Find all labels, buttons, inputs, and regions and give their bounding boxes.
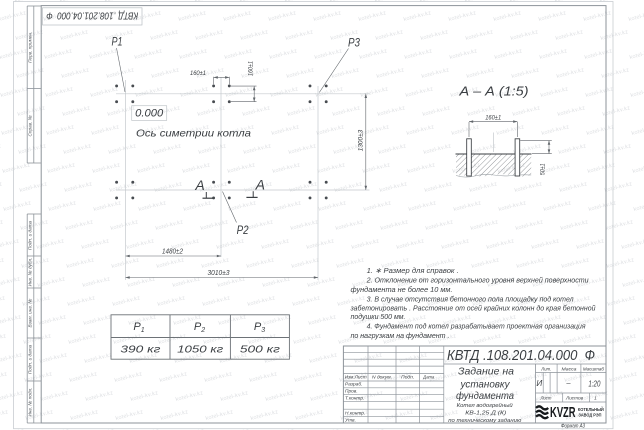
svg-text:Инв. № подл.: Инв. № подл. — [27, 387, 32, 416]
svg-text:Дата: Дата — [422, 374, 434, 380]
svg-text:0.000: 0.000 — [135, 107, 163, 119]
svg-text:Взам. инв. №: Взам. инв. № — [27, 299, 32, 328]
svg-text:А – А (1:5): А – А (1:5) — [458, 83, 528, 98]
svg-text:Перв. примен.: Перв. примен. — [27, 32, 32, 63]
svg-text:Подп. и дата: Подп. и дата — [27, 344, 32, 374]
svg-text:1. ∗ Размер для справок .: 1. ∗ Размер для справок . — [367, 266, 459, 275]
svg-text:1050 кг: 1050 кг — [177, 344, 223, 356]
svg-text:А: А — [194, 177, 204, 193]
svg-text:1300±3: 1300±3 — [357, 130, 364, 152]
svg-text:Инв. № дубл.: Инв. № дубл. — [27, 258, 32, 287]
svg-text:Утв.: Утв. — [345, 417, 356, 423]
svg-text:2. Отклонение от горизонтально: 2. Отклонение от горизонтального уровня … — [366, 275, 590, 284]
svg-text:Задание на: Задание на — [458, 366, 514, 378]
svg-text:Справ. №: Справ. № — [27, 115, 32, 136]
svg-text:160±1: 160±1 — [190, 70, 206, 77]
svg-text:фундамента: фундамента — [456, 390, 514, 402]
svg-text:Н.контр.: Н.контр. — [345, 411, 365, 417]
svg-text:Р2: Р2 — [237, 225, 250, 237]
svg-text:КОТЕЛЬНЫЙ: КОТЕЛЬНЫЙ — [578, 407, 604, 412]
svg-text:А: А — [255, 176, 265, 192]
svg-text:подушки 500 мм.: подушки 500 мм. — [351, 312, 406, 321]
svg-text:Формат А3: Формат А3 — [561, 423, 585, 429]
svg-text:фундамента не более 10 мм.: фундамента не более 10 мм. — [351, 285, 453, 294]
svg-text:3010±3: 3010±3 — [208, 270, 230, 277]
svg-text:500 кг: 500 кг — [240, 344, 280, 356]
svg-text:1480±2: 1480±2 — [162, 248, 183, 255]
svg-text:1: 1 — [594, 396, 597, 402]
svg-text:КВТД .108.201.04.000 Ф: КВТД .108.201.04.000 Ф — [46, 10, 138, 21]
svg-text:Пров.: Пров. — [345, 389, 358, 395]
svg-text:И: И — [536, 379, 542, 388]
svg-text:50±1: 50±1 — [540, 163, 547, 175]
svg-text:установку: установку — [460, 379, 511, 391]
svg-text:Листов: Листов — [565, 396, 583, 402]
svg-text:Масштаб: Масштаб — [583, 366, 604, 372]
svg-text:по техническому заданию: по техническому заданию — [448, 418, 521, 424]
svg-text:КВ-1,25 Д (К): КВ-1,25 Д (К) — [465, 410, 506, 416]
svg-text:Ось симетрии котла: Ось симетрии котла — [136, 128, 251, 140]
svg-text:160±1: 160±1 — [247, 61, 254, 76]
svg-text:KVZR: KVZR — [550, 405, 576, 421]
svg-text:Р1: Р1 — [112, 36, 123, 48]
svg-text:Лист: Лист — [540, 396, 552, 402]
svg-text:–: – — [565, 378, 571, 387]
svg-text:Изм.Лист: Изм.Лист — [345, 374, 367, 380]
svg-text:3. В случае отсутствия бетонно: 3. В случае отсутствия бетонного пола пл… — [367, 294, 575, 303]
svg-text:Котел водогрейный: Котел водогрейный — [457, 402, 513, 409]
svg-text:160±1: 160±1 — [485, 114, 501, 121]
svg-text:1:20: 1:20 — [588, 380, 600, 389]
svg-text:390 кг: 390 кг — [120, 344, 160, 356]
svg-text:КВТД .108.201.04.000 Ф: КВТД .108.201.04.000 Ф — [447, 348, 595, 364]
svg-text:Разраб.: Разраб. — [345, 382, 362, 388]
svg-text:Масса: Масса — [562, 366, 577, 372]
svg-text:Подп.: Подп. — [401, 374, 414, 380]
svg-text:Лит.: Лит. — [540, 366, 551, 372]
svg-text:по нагрузкам на фундамент .: по нагрузкам на фундамент . — [351, 331, 450, 340]
svg-text:4. Фундамент под котел разраба: 4. Фундамент под котел разрабатывает про… — [367, 321, 586, 330]
svg-text:Подп. и дата: Подп. и дата — [27, 220, 32, 250]
svg-text:ЗАВОД РЭП: ЗАВОД РЭП — [578, 413, 601, 418]
svg-text:N докум.: N докум. — [372, 374, 392, 380]
svg-text:Т.контр.: Т.контр. — [345, 396, 364, 402]
svg-text:Р3: Р3 — [348, 38, 361, 50]
